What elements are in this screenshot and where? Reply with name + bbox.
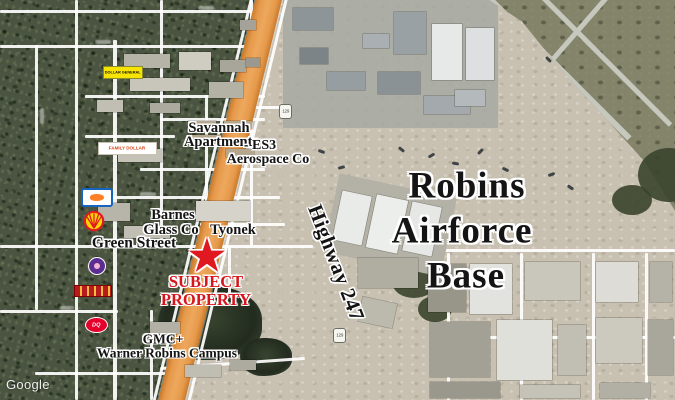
route-shield-number: 129 xyxy=(336,333,343,337)
street-segment xyxy=(75,0,78,400)
street-segment xyxy=(592,253,595,400)
building xyxy=(558,325,586,375)
fish-icon xyxy=(90,194,104,201)
aircraft xyxy=(477,148,484,155)
street-name-blur xyxy=(198,6,214,10)
building xyxy=(246,58,260,67)
building xyxy=(430,322,490,377)
street-segment xyxy=(35,372,165,375)
street-name-blur xyxy=(60,306,74,310)
family-dollar-sign-label: FAMILY DOLLAR xyxy=(109,146,145,151)
seafood-restaurant-logo xyxy=(81,188,113,207)
street-name-blur xyxy=(40,108,44,124)
label-es3-line1: - ES3 xyxy=(244,139,276,153)
tree-grove xyxy=(612,185,652,215)
bell-icon xyxy=(94,263,100,269)
building xyxy=(196,201,250,221)
building xyxy=(179,52,211,70)
label-base-line2: Airforce xyxy=(392,213,533,250)
street-name-blur xyxy=(140,192,156,196)
dollar-general-sign: DOLLAR GENERAL xyxy=(103,66,143,79)
building xyxy=(293,8,333,30)
shell-icon xyxy=(83,210,105,232)
label-subject-line1: SUBJECT xyxy=(169,274,243,291)
building xyxy=(394,12,426,54)
building xyxy=(520,385,580,398)
aircraft xyxy=(398,146,405,153)
pond xyxy=(240,338,292,376)
building xyxy=(358,258,418,288)
aircraft xyxy=(338,165,346,170)
hangar xyxy=(466,28,494,80)
building xyxy=(97,100,123,112)
building xyxy=(378,72,420,94)
building xyxy=(185,365,221,377)
building xyxy=(220,60,246,72)
building xyxy=(240,20,256,30)
label-barnes-glass-line1: Barnes xyxy=(151,208,195,223)
building xyxy=(455,90,485,106)
building xyxy=(650,262,672,302)
label-subject-line2: PROPERTY xyxy=(161,292,251,309)
route-shield-number: 129 xyxy=(282,109,289,113)
building xyxy=(130,78,190,91)
label-base-line3: Base xyxy=(427,258,505,295)
map-canvas[interactable]: 129 129 DOLLAR GENERAL FAMILY DOLLAR DQ … xyxy=(0,0,675,400)
building xyxy=(150,103,180,113)
family-dollar-sign: FAMILY DOLLAR xyxy=(98,142,157,155)
route-shield-129: 129 xyxy=(333,328,346,343)
street-segment xyxy=(0,45,262,48)
building xyxy=(497,320,552,380)
building xyxy=(209,82,243,98)
dairy-queen-logo-label: DQ xyxy=(92,322,100,328)
runway-pad xyxy=(497,90,513,101)
aircraft xyxy=(567,184,574,190)
label-es3-line2: Aerospace Co xyxy=(227,153,310,167)
taco-bell-logo xyxy=(88,257,106,275)
google-watermark: Google xyxy=(6,377,50,392)
dollar-general-sign-label: DOLLAR GENERAL xyxy=(105,71,141,75)
label-gmc-line1: GMC+ xyxy=(143,332,184,346)
runway xyxy=(486,0,632,141)
building xyxy=(230,360,256,370)
dairy-queen-logo: DQ xyxy=(85,317,108,333)
building xyxy=(648,320,673,375)
building xyxy=(596,318,642,363)
aircraft xyxy=(548,172,556,177)
route-shield-129: 129 xyxy=(279,104,292,119)
building xyxy=(327,72,365,90)
street-segment xyxy=(0,10,255,13)
label-gmc-line2: Warner Robins Campus xyxy=(97,346,237,360)
street-segment xyxy=(35,45,38,310)
street-segment xyxy=(0,310,118,313)
restaurant-banner-sign xyxy=(74,285,112,297)
label-green-street: Green Street xyxy=(92,235,176,251)
building xyxy=(300,48,328,64)
building xyxy=(596,262,638,302)
building xyxy=(363,34,389,48)
aircraft xyxy=(428,152,436,158)
hangar xyxy=(432,24,462,80)
aircraft xyxy=(318,149,326,154)
label-base-line1: Robins xyxy=(408,168,525,205)
building xyxy=(430,382,500,398)
shell-gas-logo xyxy=(83,210,105,232)
building xyxy=(600,383,650,398)
street-name-blur xyxy=(95,40,111,44)
building xyxy=(525,262,580,300)
